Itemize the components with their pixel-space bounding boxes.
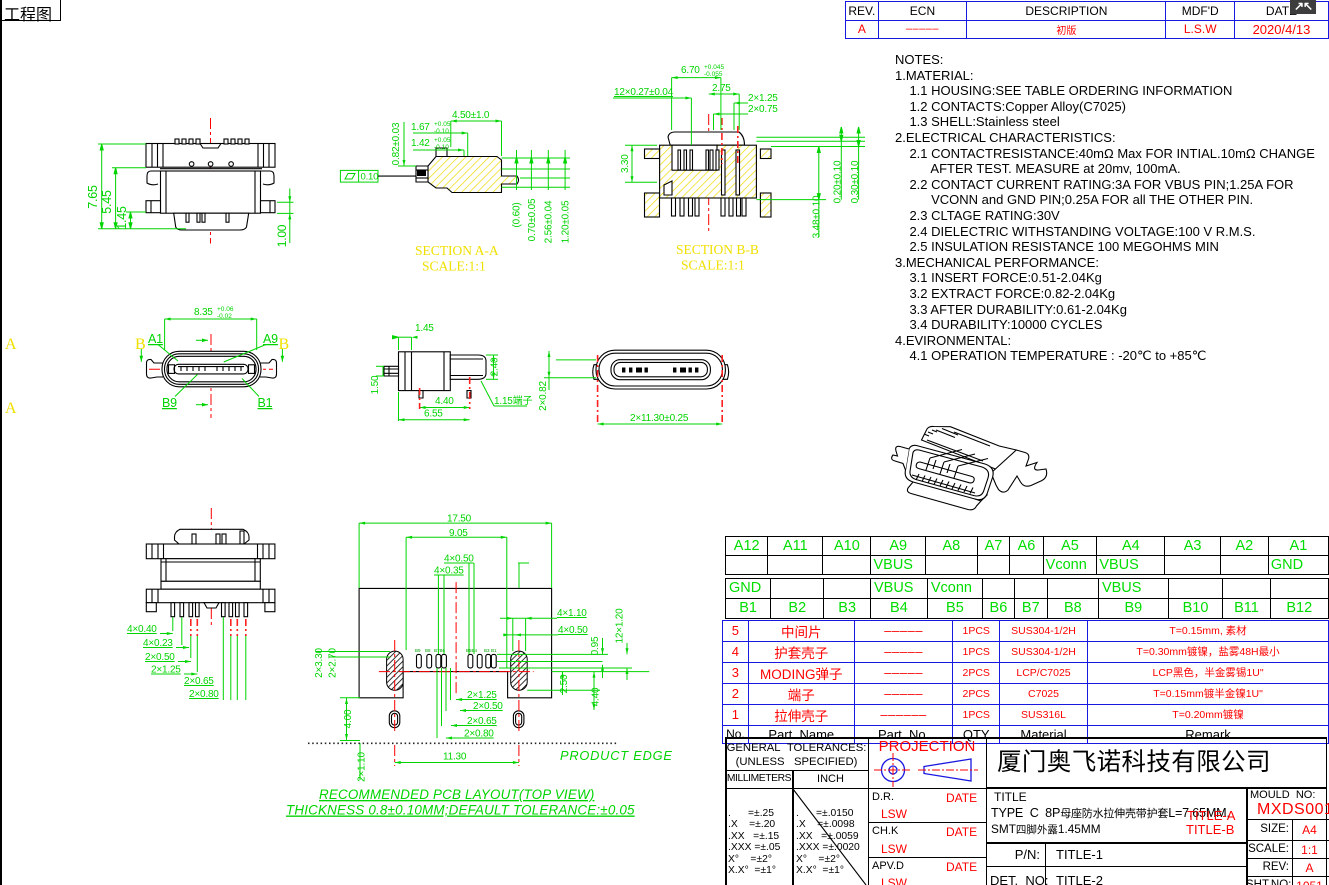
svg-text:2×1.25: 2×1.25 xyxy=(467,690,497,701)
svg-text:1.67: 1.67 xyxy=(411,122,430,133)
svg-text:2×0.80: 2×0.80 xyxy=(464,729,494,740)
svg-text:B5B4: B5B4 xyxy=(466,648,478,653)
svg-text:1.20±0.05: 1.20±0.05 xyxy=(561,200,572,243)
svg-text:2×1.25: 2×1.25 xyxy=(151,665,181,676)
svg-text:SECTION B-B: SECTION B-B xyxy=(676,242,759,257)
svg-text:2.75: 2.75 xyxy=(712,83,731,94)
svg-text:0.70±0.05: 0.70±0.05 xyxy=(527,198,538,241)
svg-text:+0.05: +0.05 xyxy=(434,137,451,144)
svg-text:PRODUCT EDGE: PRODUCT EDGE xyxy=(560,748,673,763)
svg-text:2×0.50: 2×0.50 xyxy=(145,652,175,663)
svg-text:4×1.10: 4×1.10 xyxy=(557,608,587,619)
svg-text:B3: B3 xyxy=(484,648,490,653)
svg-text:4.40: 4.40 xyxy=(435,396,454,407)
svg-text:B9: B9 xyxy=(162,396,177,410)
svg-text:2×11.30±0.25: 2×11.30±0.25 xyxy=(630,413,689,424)
svg-text:-0.055: -0.055 xyxy=(704,71,723,78)
svg-text:3.48±0.10: 3.48±0.10 xyxy=(812,195,823,238)
svg-text:+0.045: +0.045 xyxy=(704,64,724,71)
svg-text:0.95: 0.95 xyxy=(590,636,601,655)
svg-text:4.50±1.0: 4.50±1.0 xyxy=(452,110,490,121)
svg-text:2×0.80: 2×0.80 xyxy=(189,689,219,700)
svg-text:4×0.50: 4×0.50 xyxy=(444,554,474,565)
svg-text:2.56±0.04: 2.56±0.04 xyxy=(544,200,555,243)
svg-text:12×0.27±0.04: 12×0.27±0.04 xyxy=(614,87,674,98)
svg-text:0.20±0.10: 0.20±0.10 xyxy=(833,160,844,203)
svg-text:A: A xyxy=(5,336,17,353)
svg-text:6.55: 6.55 xyxy=(424,409,443,420)
svg-text:SCALE:1:1: SCALE:1:1 xyxy=(681,258,745,273)
svg-text:B: B xyxy=(135,336,146,353)
svg-text:3.30: 3.30 xyxy=(620,154,631,173)
svg-text:SECTION A-A: SECTION A-A xyxy=(415,243,499,258)
svg-text:8.35: 8.35 xyxy=(194,307,213,318)
svg-text:B9: B9 xyxy=(415,648,421,653)
svg-text:B1: B1 xyxy=(258,396,273,410)
svg-text:2×0.75: 2×0.75 xyxy=(748,104,778,115)
svg-text:1.15端子: 1.15端子 xyxy=(494,394,532,407)
svg-text:0.82±0.03: 0.82±0.03 xyxy=(391,122,402,165)
svg-text:SCALE:1:1: SCALE:1:1 xyxy=(422,259,486,274)
svg-text:5.45: 5.45 xyxy=(100,190,114,214)
svg-text:2×3.30: 2×3.30 xyxy=(314,648,325,678)
svg-text:1.45: 1.45 xyxy=(115,206,129,230)
svg-text:0.30±0.10: 0.30±0.10 xyxy=(850,160,861,203)
svg-text:4×0.50: 4×0.50 xyxy=(558,625,588,636)
svg-text:+0.05: +0.05 xyxy=(434,121,451,128)
svg-text:4×0.23: 4×0.23 xyxy=(143,638,173,649)
svg-text:A: A xyxy=(5,400,17,417)
svg-text:4.00: 4.00 xyxy=(343,709,354,728)
svg-text:2.40: 2.40 xyxy=(490,357,501,376)
svg-text:1.45: 1.45 xyxy=(415,323,434,334)
svg-text:11.30: 11.30 xyxy=(443,752,467,763)
svg-text:12×1.20: 12×1.20 xyxy=(615,608,626,644)
svg-text:+0.06: +0.06 xyxy=(217,306,234,313)
svg-text:7.65: 7.65 xyxy=(86,185,100,209)
svg-text:4×0.35: 4×0.35 xyxy=(434,566,464,577)
svg-text:2×0.65: 2×0.65 xyxy=(467,716,497,727)
svg-text:0.10: 0.10 xyxy=(361,172,379,183)
svg-text:2×0.82: 2×0.82 xyxy=(538,381,549,411)
svg-text:2×0.65: 2×0.65 xyxy=(184,676,214,687)
svg-text:B: B xyxy=(279,336,290,353)
svg-text:-0.10: -0.10 xyxy=(434,128,449,135)
svg-text:4×0.40: 4×0.40 xyxy=(127,624,157,635)
svg-text:2×1.10: 2×1.10 xyxy=(357,752,368,782)
svg-text:(0.60): (0.60) xyxy=(512,203,523,228)
svg-text:THICKNESS 0.8±0.10MM;DEFAULT T: THICKNESS 0.8±0.10MM;DEFAULT TOLERANCE:±… xyxy=(286,803,635,818)
svg-text:A1: A1 xyxy=(148,332,163,346)
svg-text:2×0.50: 2×0.50 xyxy=(473,701,503,712)
svg-text:1.00: 1.00 xyxy=(275,224,289,247)
svg-text:1.42: 1.42 xyxy=(411,138,430,149)
svg-text:2×2.70: 2×2.70 xyxy=(328,648,339,678)
svg-text:RECOMMENDED PCB LAYOUT(TOP VIE: RECOMMENDED PCB LAYOUT(TOP VIEW) xyxy=(319,787,594,802)
svg-text:1.50: 1.50 xyxy=(370,375,381,394)
svg-text:2×1.25: 2×1.25 xyxy=(748,93,778,104)
svg-text:B8: B8 xyxy=(425,648,431,653)
svg-text:B1: B1 xyxy=(491,648,497,653)
svg-text:6.70: 6.70 xyxy=(681,65,700,76)
svg-text:A9: A9 xyxy=(263,332,278,346)
